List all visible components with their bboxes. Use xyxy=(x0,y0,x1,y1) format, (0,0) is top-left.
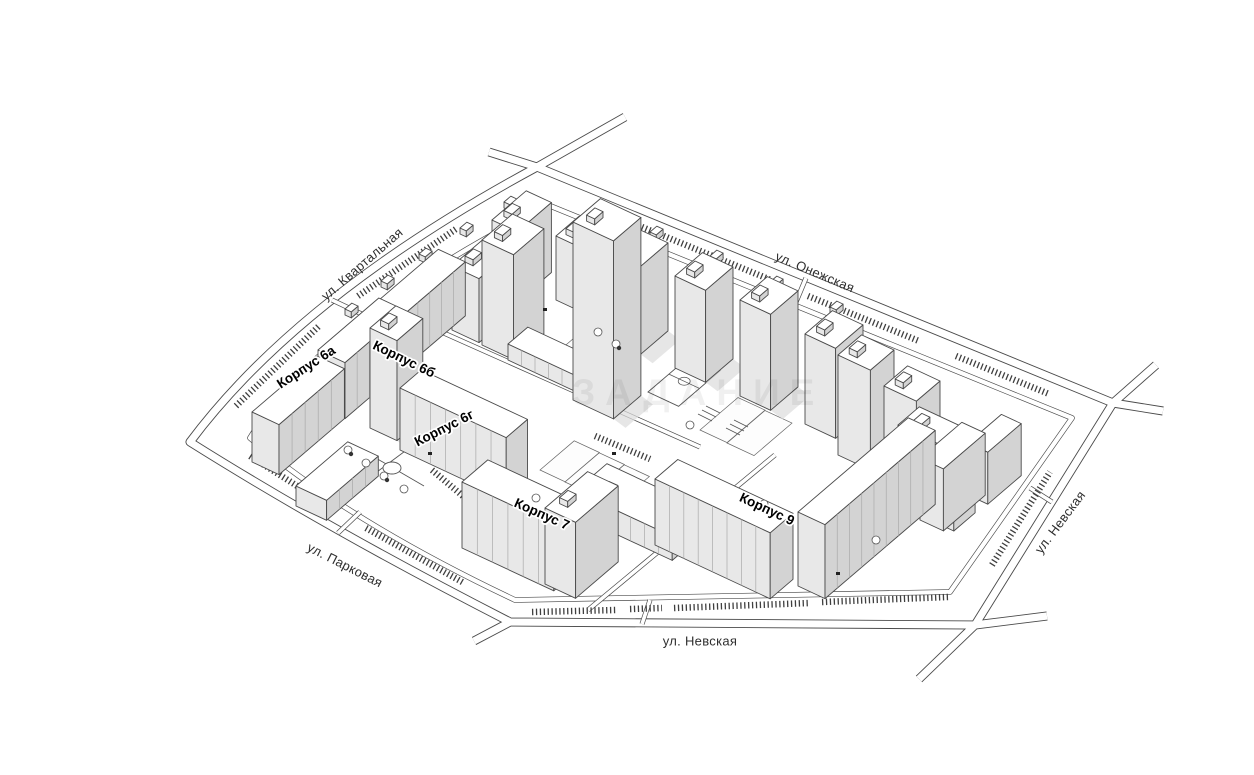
residential-masterplan-map: ул. Квартальная ул. Онежская ул. Невская… xyxy=(0,0,1254,775)
street-label-nevskaya-bottom: ул. Невская xyxy=(663,634,737,649)
tree xyxy=(400,485,408,493)
playground-accent xyxy=(428,452,432,455)
tree xyxy=(594,328,602,336)
building-face-left xyxy=(740,300,771,410)
building-face-left xyxy=(482,240,514,360)
building-face-left xyxy=(573,222,614,419)
site-plan-illustration xyxy=(0,0,1254,775)
building-face-right xyxy=(614,218,641,419)
playground-accent xyxy=(543,308,547,311)
playground-accent xyxy=(612,452,616,455)
building-face-left xyxy=(798,512,825,599)
building-face-left xyxy=(805,334,836,438)
playground-accent xyxy=(836,572,840,575)
building-face-left xyxy=(838,355,870,470)
tree xyxy=(686,421,694,429)
tree xyxy=(362,459,370,467)
tree xyxy=(872,536,880,544)
tree xyxy=(532,494,540,502)
building-face-left xyxy=(675,276,706,382)
